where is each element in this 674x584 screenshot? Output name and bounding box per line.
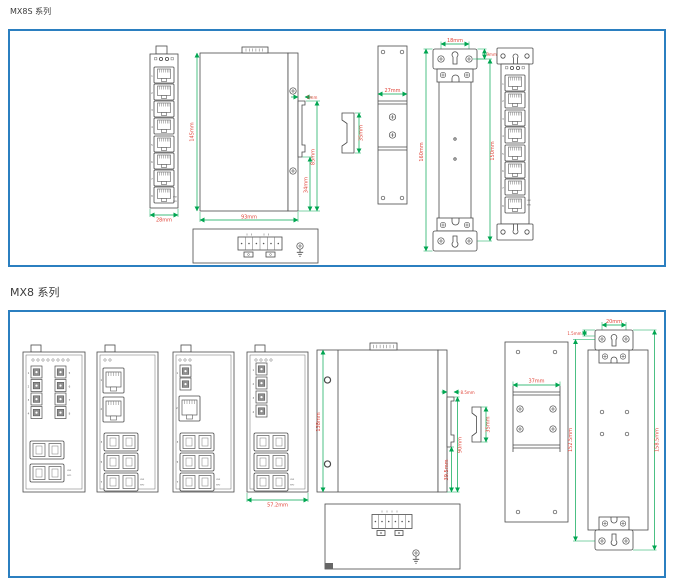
dimension-rail-profile: 35mm bbox=[486, 416, 492, 432]
mx8-side-view: 138mm 8.5mm 90mm 39.5mm bbox=[316, 343, 475, 492]
mx8s-rear-plate-view: 27mm bbox=[378, 46, 407, 204]
dual-rj45-module bbox=[30, 441, 64, 459]
mx8s-bottom-view bbox=[193, 229, 318, 263]
dimension-clip-span: 90mm bbox=[458, 437, 464, 453]
keyhole-slot bbox=[611, 335, 617, 347]
dual-rj45-module bbox=[180, 453, 214, 471]
fiber-port bbox=[256, 391, 267, 403]
rj45-port bbox=[179, 396, 200, 421]
dual-rj45-module bbox=[104, 453, 138, 471]
mx8s-side-view: 145mm 5mm 85mm 34mm 93mm bbox=[190, 47, 321, 222]
dimension-clip-tab: 5mm bbox=[307, 95, 317, 100]
screw-icon bbox=[466, 238, 472, 244]
dimension-bracket-offset: 9mm bbox=[487, 52, 497, 57]
screw-icon bbox=[550, 406, 556, 412]
screw-icon bbox=[623, 336, 629, 342]
mx8s-wallmount-view: 18mm 9mm 160mm 150mm bbox=[419, 38, 497, 251]
dimension-mount-overall: 160mm bbox=[419, 142, 425, 161]
mx8-section-title: MX8 系列 bbox=[10, 284, 60, 300]
fiber-port bbox=[55, 407, 66, 419]
mx8-wallmount-view: 20mm 1.5mm 152.5mm 158.5mm bbox=[567, 319, 660, 550]
screw-icon bbox=[550, 426, 556, 432]
fiber-port bbox=[31, 380, 42, 392]
status-label: LNK bbox=[67, 470, 72, 472]
mx8-rail-profile-view: 35mm bbox=[472, 407, 492, 442]
fiber-port bbox=[180, 365, 191, 377]
mx8s-section-title: MX8S 系列 bbox=[10, 6, 51, 17]
ground-screw-icon bbox=[297, 243, 303, 249]
rj45-port bbox=[154, 187, 174, 203]
dimension-bracket-offset: 1.5mm bbox=[567, 331, 581, 336]
dimension-mount-holes: 150mm bbox=[490, 141, 496, 160]
mx8-front-view-fiber4: 1 2 3 4 LNK SPD 57.2mm bbox=[247, 345, 308, 509]
status-label: SPD bbox=[67, 475, 72, 477]
mx8s-panel: 1 2 3 4 5 6 7 8 LNK SPD 28mm 145mm 5mm 8… bbox=[8, 29, 666, 267]
dimension-mount-overall: 158.5mm bbox=[655, 428, 661, 452]
fiber-port bbox=[256, 363, 267, 375]
screw-icon bbox=[290, 88, 296, 94]
dual-rj45-module bbox=[104, 473, 138, 491]
rj45-port bbox=[505, 162, 525, 178]
keyhole-slot bbox=[452, 236, 458, 247]
dimension-clip-tab: 8.5mm bbox=[461, 390, 475, 395]
mx8-drawing: 1 2 3 4 5 6 7 8 LNK SPD 1 2 3 5 7 LNK SP… bbox=[10, 312, 664, 576]
fiber-port bbox=[256, 405, 267, 417]
dimension-rail-profile: 35mm bbox=[359, 125, 365, 141]
dimension-clip-span: 85mm bbox=[311, 149, 317, 165]
dual-rj45-module bbox=[30, 464, 64, 482]
status-label: LNK bbox=[216, 479, 221, 481]
status-label: SPD bbox=[173, 201, 178, 203]
din-clip bbox=[447, 397, 454, 447]
mx8s-drawing: 1 2 3 4 5 6 7 8 LNK SPD 28mm 145mm 5mm 8… bbox=[10, 31, 664, 265]
fiber-port bbox=[31, 366, 42, 378]
dimension-plate-width: 27mm bbox=[384, 88, 400, 94]
dimension-front-width: 28mm bbox=[156, 218, 172, 224]
screw-icon bbox=[517, 426, 523, 432]
screw-icon bbox=[438, 56, 444, 62]
status-label: LNK bbox=[290, 479, 295, 481]
mx8-rear-plate-view: 37mm bbox=[505, 342, 568, 522]
dual-rj45-module bbox=[254, 433, 288, 451]
status-label: SPD bbox=[216, 485, 221, 487]
dual-rj45-module bbox=[254, 473, 288, 491]
dimension-bracket-holes: 18mm bbox=[447, 38, 463, 44]
mx8-front-view-mixed: 1 2 3 5 7 LNK SPD bbox=[173, 345, 234, 492]
screw-icon bbox=[290, 168, 296, 174]
rj45-port bbox=[505, 110, 525, 126]
dimension-hook-span: 39.5mm bbox=[444, 459, 450, 480]
dimension-plate-width: 37mm bbox=[528, 379, 544, 385]
rj45-port bbox=[103, 397, 124, 422]
fiber-port bbox=[55, 366, 66, 378]
mx8-bottom-view bbox=[325, 504, 460, 569]
corner-notch bbox=[325, 563, 333, 569]
rj45-port bbox=[154, 153, 174, 169]
keyhole-slot bbox=[452, 52, 458, 64]
din-clip bbox=[298, 101, 305, 157]
rj45-port bbox=[154, 101, 174, 117]
dual-rj45-module bbox=[180, 473, 214, 491]
screw-icon bbox=[389, 114, 395, 120]
rj45-port bbox=[505, 75, 525, 91]
ground-screw-icon bbox=[413, 550, 419, 556]
screw-icon bbox=[623, 538, 629, 544]
status-label: LNK bbox=[527, 200, 532, 202]
status-label: SPD bbox=[140, 485, 145, 487]
status-label: SPD bbox=[290, 485, 295, 487]
dimension-front-width: 57.2mm bbox=[267, 503, 288, 509]
mx8s-rail-profile-view: 35mm bbox=[342, 113, 365, 153]
fiber-port bbox=[55, 380, 66, 392]
status-label: LNK bbox=[140, 479, 145, 481]
mx8s-front-wallmount-view: 1 2 3 4 5 6 7 8 LNK SPD bbox=[497, 48, 533, 240]
dimension-mount-holes: 152.5mm bbox=[568, 428, 574, 452]
status-label: SPD bbox=[527, 205, 532, 207]
fiber-port bbox=[55, 393, 66, 405]
keyhole-slot bbox=[611, 534, 617, 546]
fiber-port bbox=[256, 377, 267, 389]
rj45-port bbox=[154, 170, 174, 186]
dual-rj45-module bbox=[104, 433, 138, 451]
rj45-port bbox=[154, 67, 174, 83]
screw-icon bbox=[438, 238, 444, 244]
dimension-hook-span: 34mm bbox=[304, 177, 310, 193]
dimension-height: 138mm bbox=[316, 412, 322, 431]
rj45-port bbox=[505, 179, 525, 195]
mx8s-front-view: 1 2 3 4 5 6 7 8 LNK SPD 28mm bbox=[150, 46, 178, 224]
rj45-port bbox=[505, 127, 525, 143]
rj45-port bbox=[505, 92, 525, 108]
rj45-port bbox=[154, 118, 174, 134]
screw-icon bbox=[466, 56, 472, 62]
mx8-front-view-fiber8: 1 2 3 4 5 6 7 8 LNK SPD bbox=[23, 345, 85, 492]
fiber-port bbox=[180, 378, 191, 390]
dimension-bracket-holes: 20mm bbox=[606, 319, 622, 325]
rj45-port bbox=[103, 368, 124, 393]
screw-icon bbox=[389, 132, 395, 138]
mx8-front-view-copper: 1 2 3 5 7 LNK SPD bbox=[97, 345, 158, 492]
dual-rj45-module bbox=[254, 453, 288, 471]
rj45-port bbox=[154, 136, 174, 152]
mx8-panel: 1 2 3 4 5 6 7 8 LNK SPD 1 2 3 5 7 LNK SP… bbox=[8, 310, 666, 578]
rj45-port bbox=[154, 84, 174, 100]
screw-icon bbox=[599, 538, 605, 544]
screw-icon bbox=[517, 406, 523, 412]
status-label: LNK bbox=[173, 197, 178, 199]
rj45-port bbox=[505, 197, 525, 213]
screw-icon bbox=[599, 336, 605, 342]
dual-rj45-module bbox=[180, 433, 214, 451]
fiber-port bbox=[31, 393, 42, 405]
dimension-height: 145mm bbox=[190, 122, 196, 141]
dimension-depth: 93mm bbox=[241, 215, 257, 221]
fiber-port bbox=[31, 407, 42, 419]
rj45-port bbox=[505, 145, 525, 161]
